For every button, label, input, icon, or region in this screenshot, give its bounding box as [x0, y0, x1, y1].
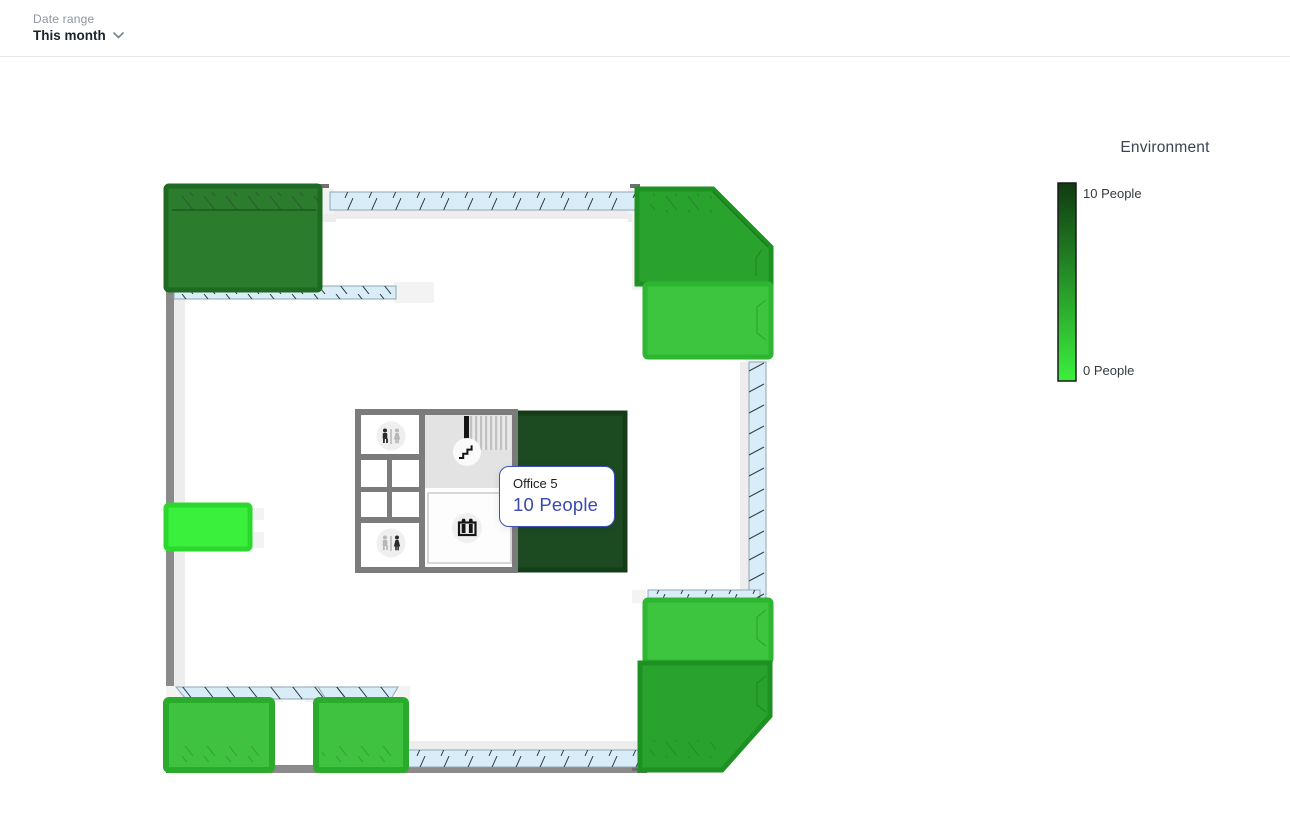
elevator-icon: [452, 513, 482, 543]
date-range-selector[interactable]: Date range This month: [33, 12, 124, 43]
date-range-value: This month: [33, 28, 106, 43]
floorplan-canvas: [0, 57, 1290, 833]
legend-gradient-bar: [1057, 182, 1078, 387]
legend-max-label: 10 People: [1083, 186, 1142, 201]
floorplan-area: Office 5 10 People Environment 10 People…: [0, 57, 1290, 833]
stairs-icon: [453, 438, 481, 466]
date-range-label: Date range: [33, 12, 124, 26]
tooltip-occupancy-value: 10 People: [513, 494, 598, 516]
room-bottom-right-upper[interactable]: [645, 600, 771, 662]
chevron-down-icon: [113, 32, 124, 39]
restroom-women-icon: [377, 529, 406, 558]
room-left-middle[interactable]: [166, 505, 250, 549]
header-bar: Date range This month: [0, 0, 1290, 57]
legend-title: Environment: [1065, 139, 1265, 157]
restroom-men-icon: [377, 422, 406, 451]
tooltip-room-name: Office 5: [513, 476, 598, 491]
legend-min-label: 0 People: [1083, 363, 1134, 378]
room-top-right-lower[interactable]: [645, 284, 771, 357]
room-tooltip: Office 5 10 People: [499, 466, 615, 527]
